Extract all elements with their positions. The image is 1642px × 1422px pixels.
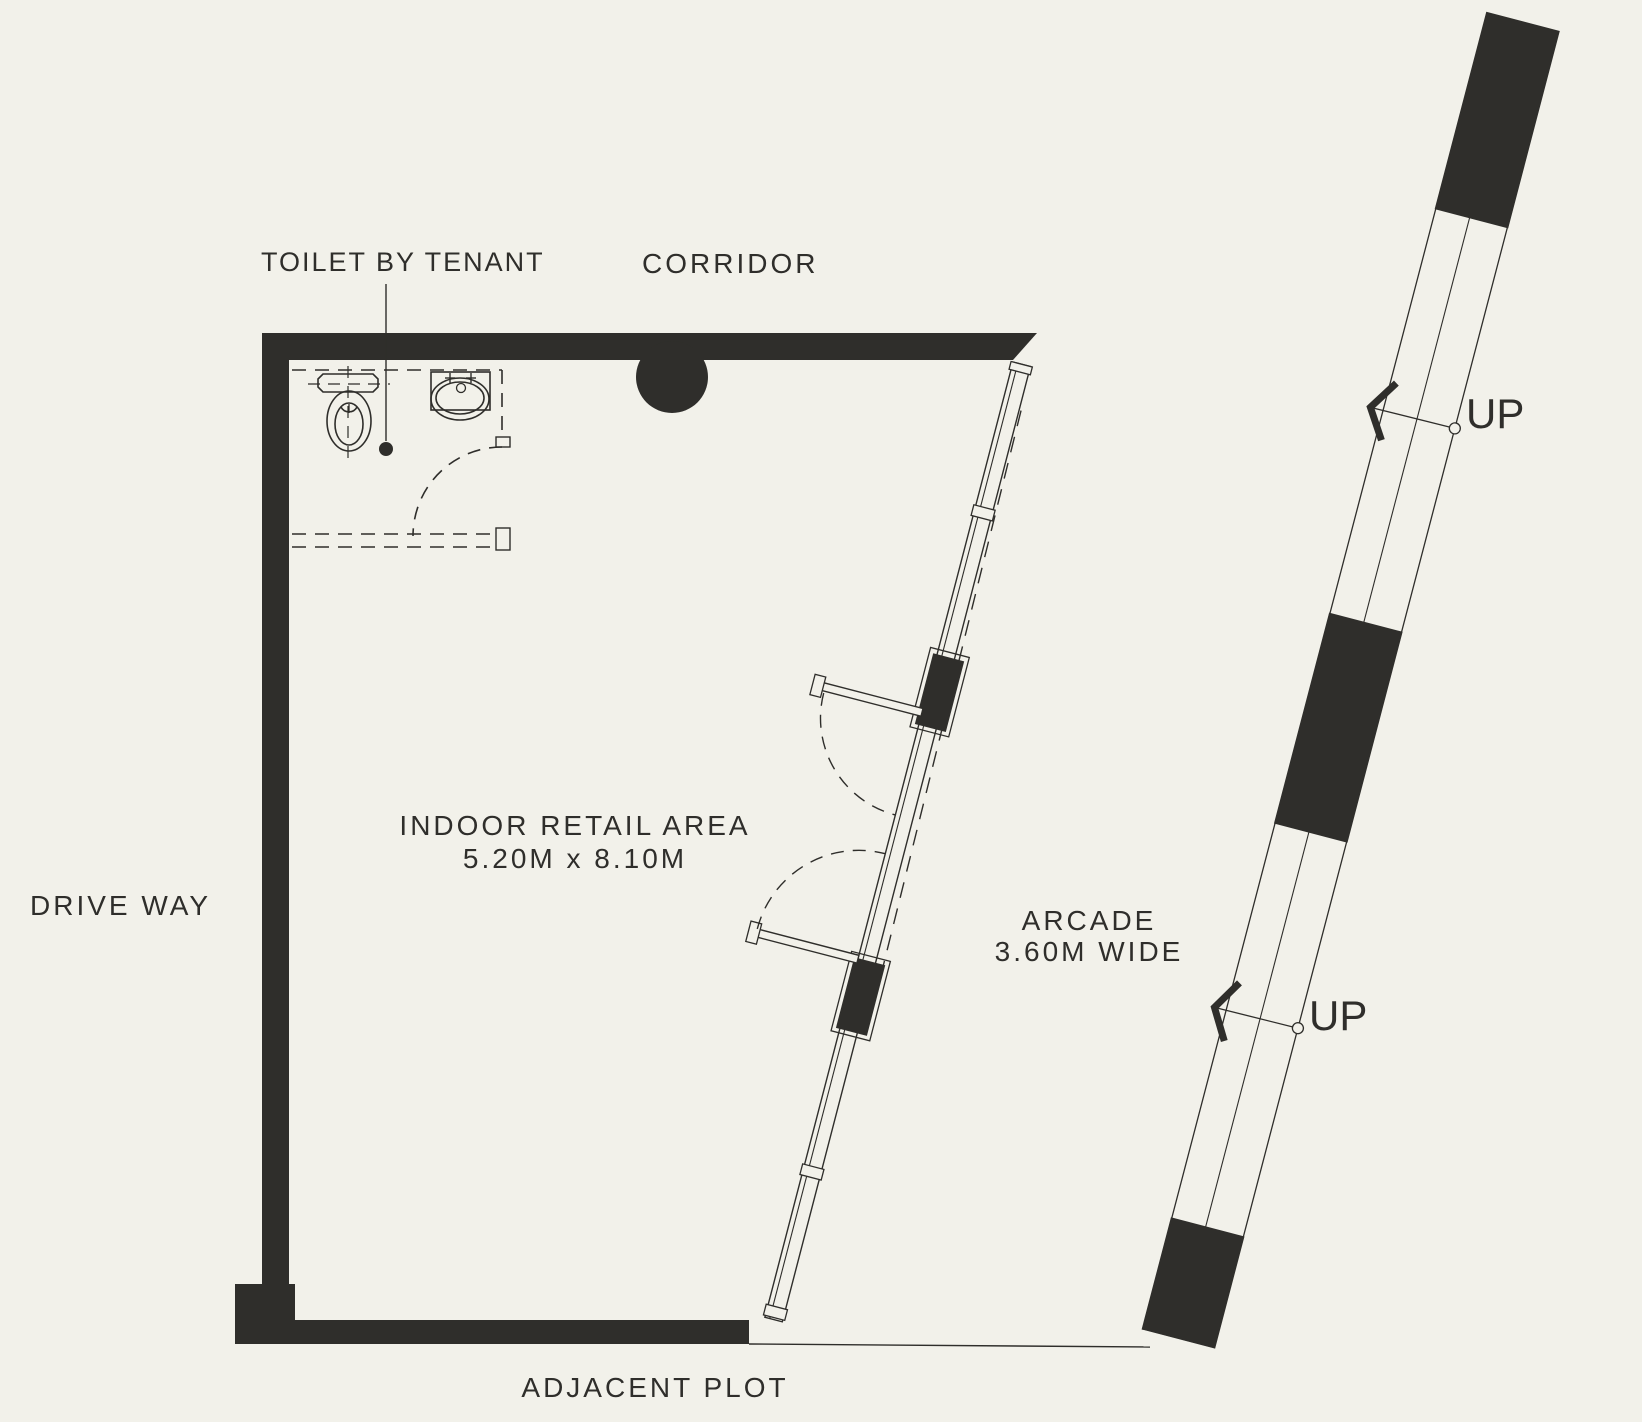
plot-boundary-line bbox=[749, 1344, 1150, 1347]
floor-plan: TOILET BY TENANT CORRIDOR INDOOR RETAIL … bbox=[0, 0, 1642, 1422]
corridor-label: CORRIDOR bbox=[642, 248, 818, 280]
faucet-cross-left bbox=[445, 373, 455, 383]
door-leaf-upper bbox=[821, 683, 923, 717]
stair-strip bbox=[1130, 9, 1564, 1350]
toilet-door-swing-arc bbox=[413, 447, 502, 536]
landing-block-bottom bbox=[1142, 1217, 1245, 1348]
up-marker-2-origin bbox=[1291, 1021, 1304, 1034]
up-marker-1-origin bbox=[1448, 422, 1461, 435]
storefront-band bbox=[765, 362, 1031, 1322]
arcade-title: ARCADE bbox=[1022, 905, 1157, 937]
leader-dot bbox=[379, 442, 393, 456]
sink-fixture bbox=[431, 372, 490, 420]
toilet-room bbox=[292, 284, 510, 550]
glazing-tick-upper bbox=[971, 505, 995, 521]
corner-column-block bbox=[235, 1284, 295, 1344]
toilet-door-jamb-bottom bbox=[496, 528, 510, 550]
up-label-2: UP bbox=[1309, 992, 1367, 1040]
door-leaf-lower-cap bbox=[746, 921, 762, 944]
left-wall bbox=[262, 333, 289, 1284]
sink-drain bbox=[457, 384, 466, 393]
landing-block-middle bbox=[1274, 613, 1403, 843]
toilet-door-jamb-top bbox=[496, 437, 510, 447]
wc-bowl-outer bbox=[327, 391, 371, 451]
glazing-tick-lower bbox=[800, 1164, 824, 1180]
up-marker-1-symbol bbox=[1363, 378, 1467, 458]
up-marker-2-line bbox=[1214, 1006, 1297, 1029]
drive-way-label: DRIVE WAY bbox=[30, 890, 211, 922]
wc-fixture bbox=[308, 366, 390, 462]
floor-plan-drawing bbox=[0, 0, 1642, 1422]
up-marker-2-symbol bbox=[1207, 978, 1311, 1059]
toilet-label: TOILET BY TENANT bbox=[261, 247, 545, 278]
glazing-tick-top bbox=[1009, 361, 1032, 374]
landing-block-top bbox=[1435, 12, 1560, 229]
bottom-wall bbox=[295, 1320, 749, 1344]
arcade-dimensions: 3.60M WIDE bbox=[995, 936, 1184, 968]
adjacent-plot-label: ADJACENT PLOT bbox=[521, 1372, 788, 1404]
round-column bbox=[636, 341, 708, 413]
door-leaf-lower bbox=[757, 929, 859, 963]
retail-area-title: INDOOR RETAIL AREA bbox=[399, 810, 750, 842]
lower-mullion bbox=[836, 957, 885, 1036]
upper-mullion bbox=[915, 653, 964, 732]
retail-area-dimensions: 5.20M x 8.10M bbox=[463, 843, 687, 875]
up-label-1: UP bbox=[1466, 390, 1524, 438]
